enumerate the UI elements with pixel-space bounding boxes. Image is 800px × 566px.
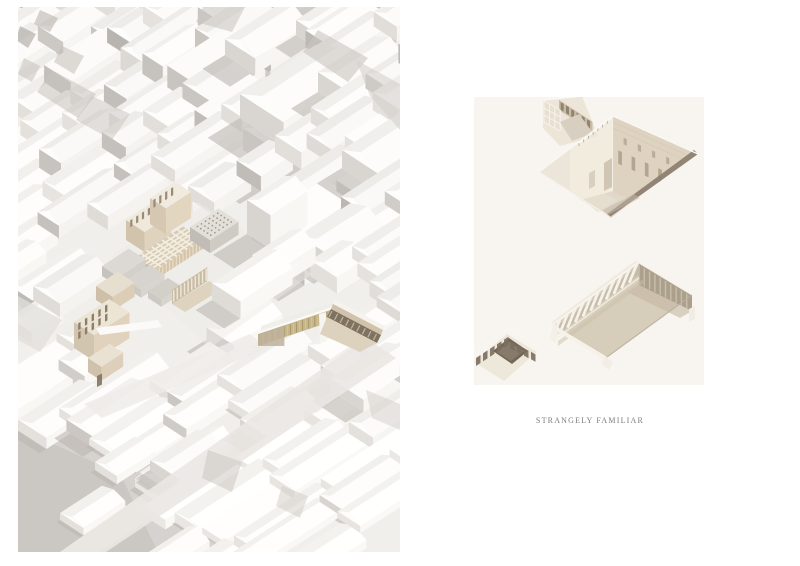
svg-text:STRANGELY FAMILIAR: STRANGELY FAMILIAR bbox=[536, 416, 644, 425]
